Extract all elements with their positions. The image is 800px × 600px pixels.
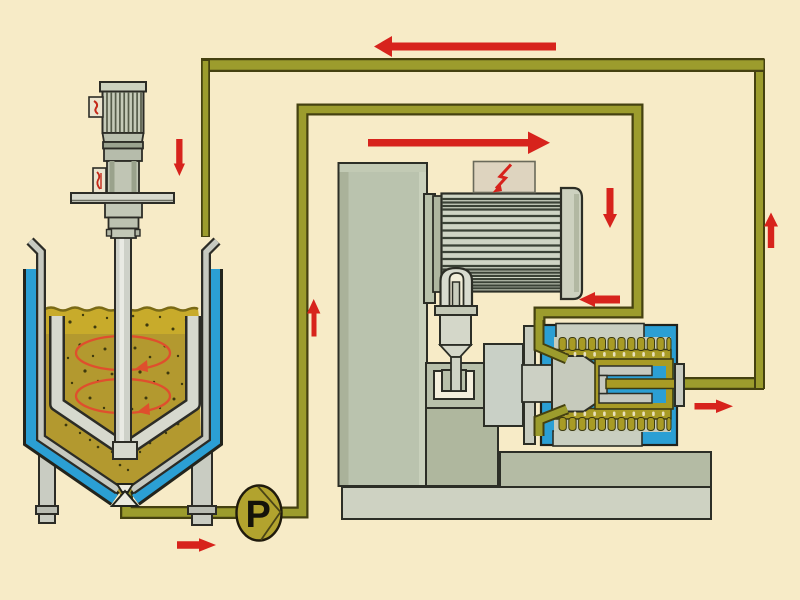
svg-text:P: P [246,494,271,536]
